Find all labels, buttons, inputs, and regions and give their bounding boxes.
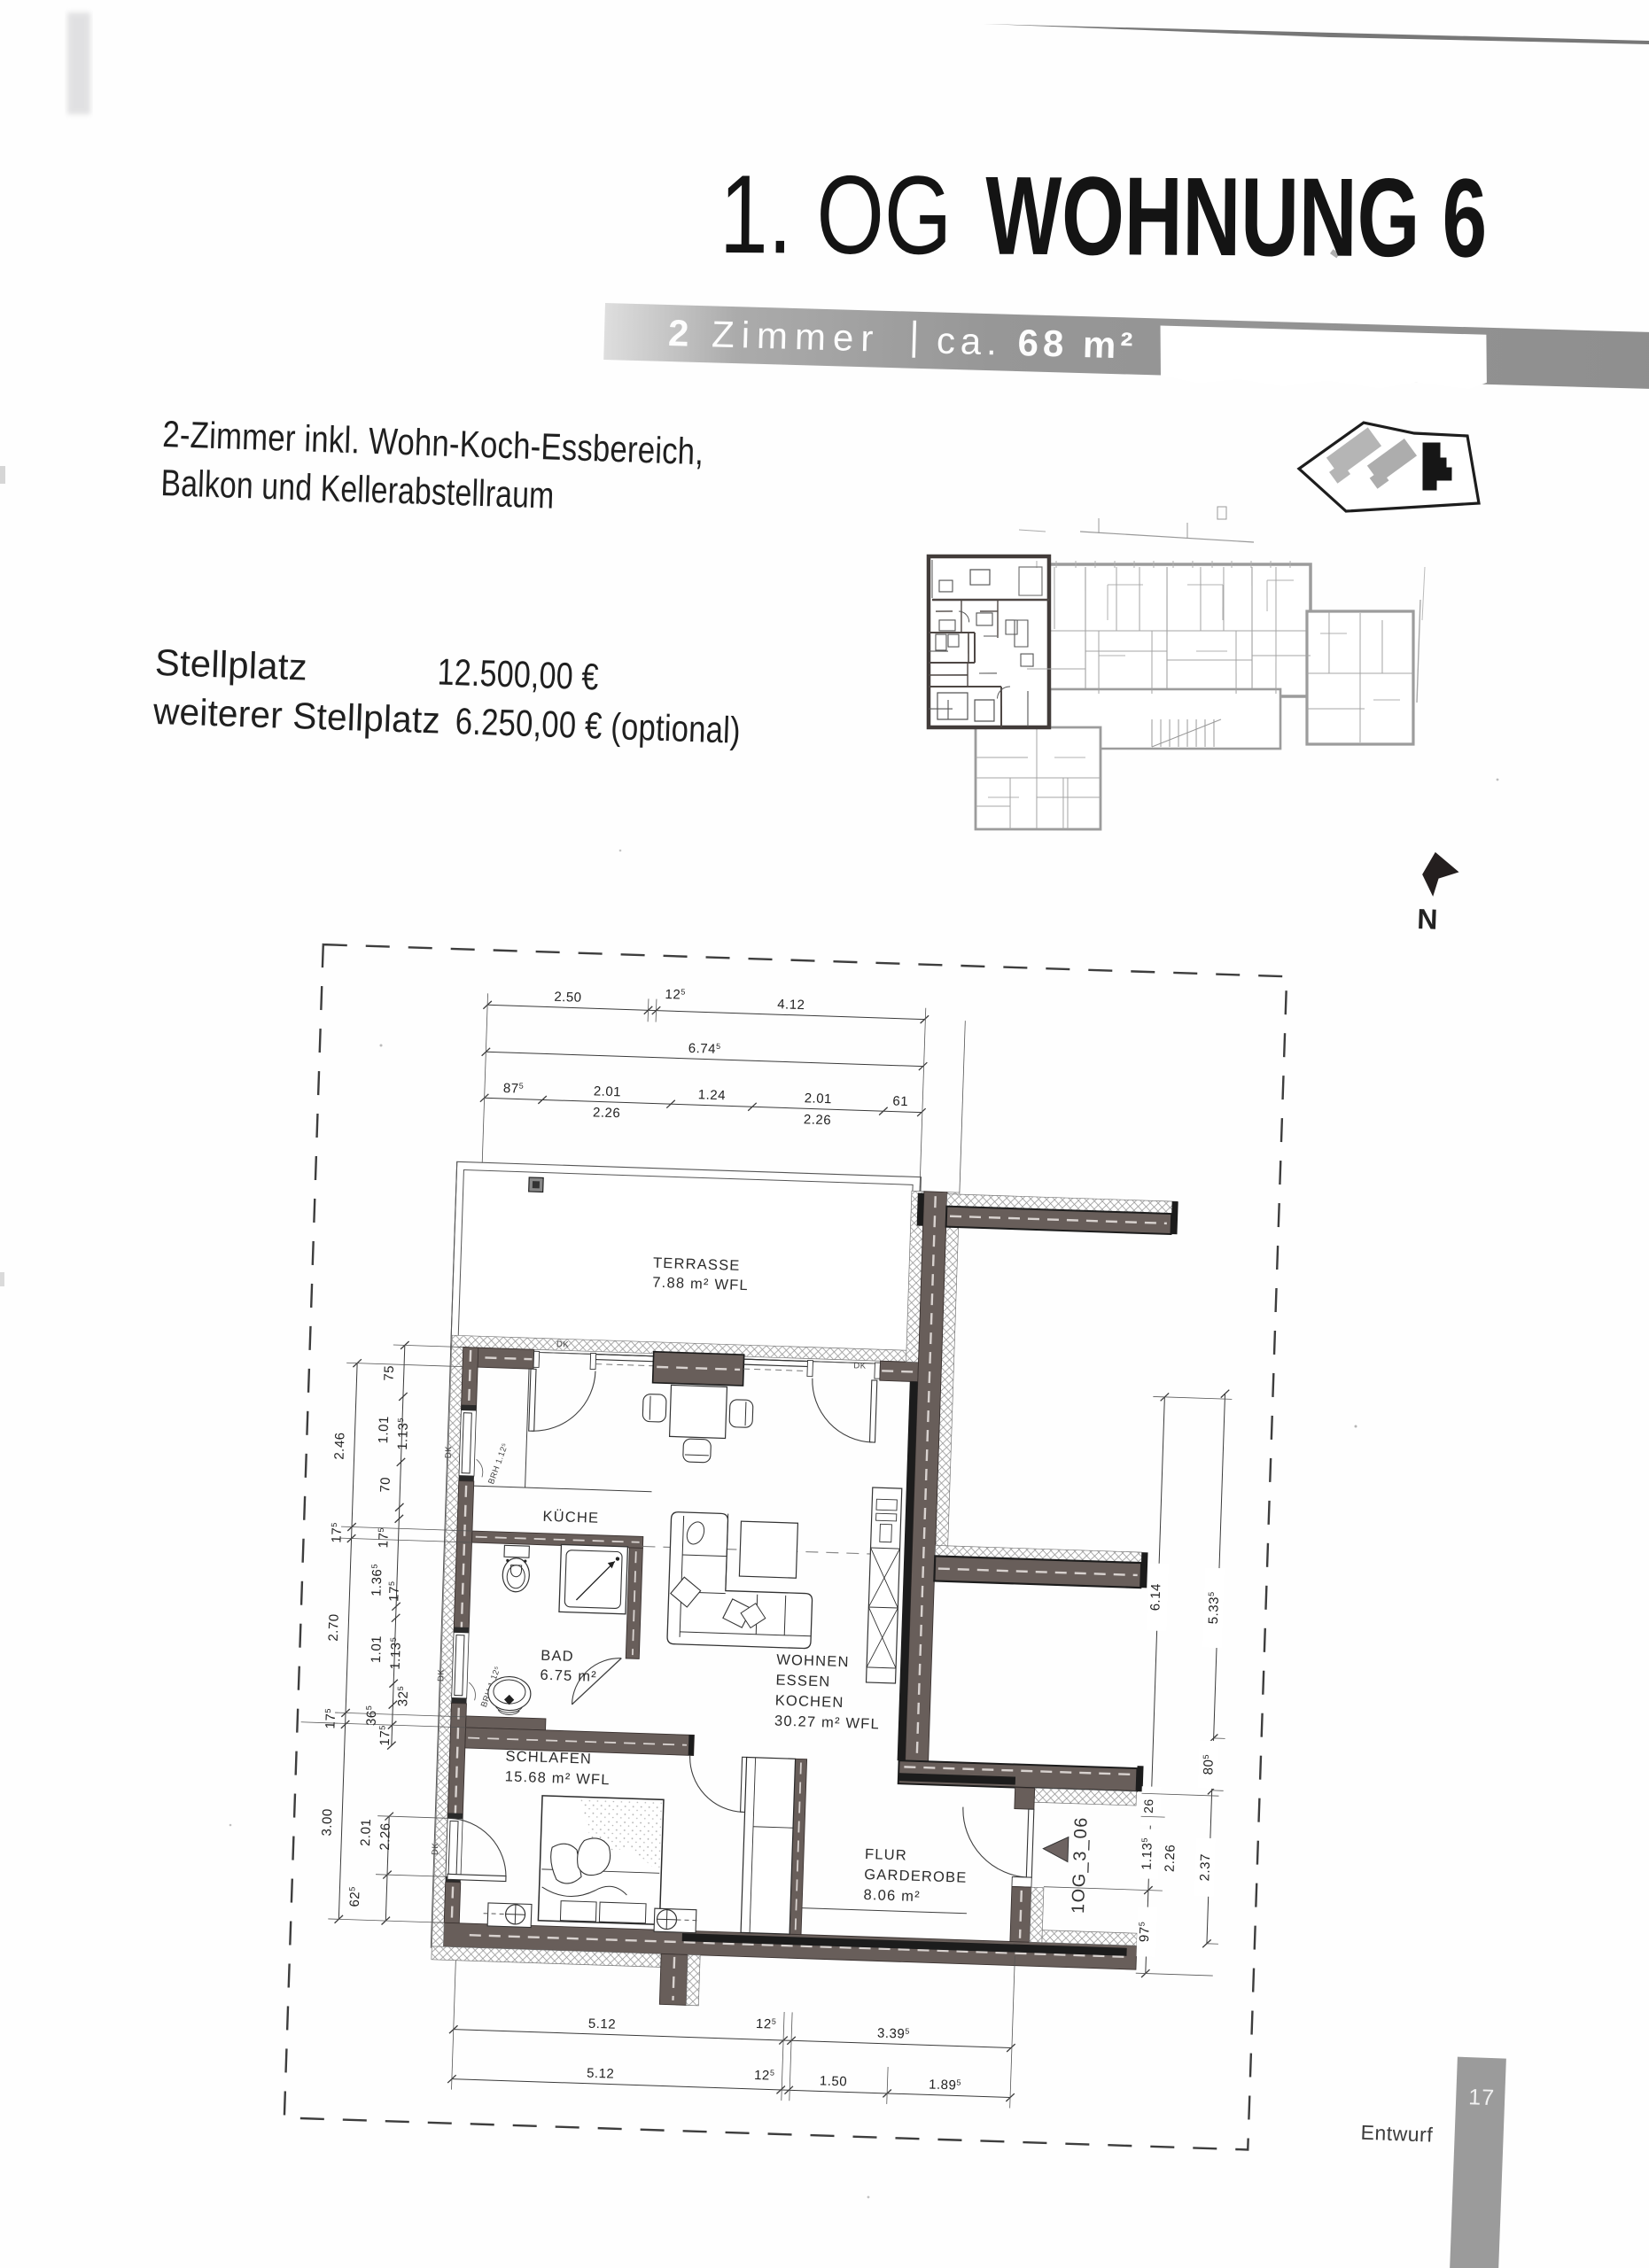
svg-text:5.12: 5.12 bbox=[587, 2066, 615, 2082]
svg-text:175: 175 bbox=[386, 1581, 402, 1602]
svg-text:FLUR: FLUR bbox=[865, 1846, 907, 1864]
svg-text:ca. 68 m²: ca. 68 m² bbox=[936, 319, 1138, 366]
svg-text:GARDEROBE: GARDEROBE bbox=[864, 1867, 968, 1886]
svg-text:26: 26 bbox=[1141, 1798, 1156, 1814]
svg-text:125: 125 bbox=[665, 987, 686, 1003]
svg-text:3.395: 3.395 bbox=[877, 2026, 910, 2042]
svg-text:1.895: 1.895 bbox=[929, 2077, 961, 2093]
svg-text:1.135: 1.135 bbox=[388, 1637, 404, 1670]
svg-text:DK: DK bbox=[556, 1340, 570, 1349]
svg-text:2.50: 2.50 bbox=[554, 990, 582, 1006]
svg-text:17: 17 bbox=[1468, 2085, 1496, 2110]
svg-text:1.135: 1.135 bbox=[395, 1417, 411, 1450]
svg-text:2.26: 2.26 bbox=[593, 1105, 621, 1121]
svg-text:2.37: 2.37 bbox=[1197, 1853, 1213, 1882]
svg-text:125: 125 bbox=[756, 2016, 777, 2032]
svg-text:Entwurf: Entwurf bbox=[1360, 2121, 1433, 2147]
svg-text:2 Zimmer: 2 Zimmer bbox=[667, 312, 881, 360]
svg-text:1.01: 1.01 bbox=[376, 1416, 392, 1444]
svg-text:61: 61 bbox=[892, 1094, 908, 1110]
svg-text:1. OGWOHNUNG 6: 1. OGWOHNUNG 6 bbox=[719, 151, 1488, 281]
svg-text:6.745: 6.745 bbox=[688, 1041, 720, 1057]
svg-text:3.00: 3.00 bbox=[319, 1808, 335, 1837]
svg-text:WOHNEN: WOHNEN bbox=[776, 1652, 850, 1671]
svg-text:8.06 m²: 8.06 m² bbox=[863, 1887, 921, 1905]
svg-text:12.500,00 €: 12.500,00 € bbox=[437, 650, 599, 697]
svg-text:175: 175 bbox=[377, 1725, 393, 1746]
svg-text:KOCHEN: KOCHEN bbox=[774, 1693, 844, 1712]
svg-text:KÜCHE: KÜCHE bbox=[542, 1509, 599, 1526]
svg-text:DK: DK bbox=[431, 1842, 440, 1855]
svg-text:15.68 m² WFL: 15.68 m² WFL bbox=[504, 1768, 610, 1788]
svg-text:175: 175 bbox=[323, 1708, 338, 1729]
svg-text:DK: DK bbox=[444, 1446, 454, 1459]
svg-text:325: 325 bbox=[395, 1686, 411, 1707]
svg-text:Stellplatz: Stellplatz bbox=[154, 641, 307, 688]
svg-text:2.26: 2.26 bbox=[804, 1112, 832, 1128]
svg-text:2.01: 2.01 bbox=[804, 1091, 832, 1107]
svg-text:6.250,00 € (optional): 6.250,00 € (optional) bbox=[455, 700, 741, 751]
svg-text:DK: DK bbox=[853, 1361, 867, 1371]
svg-text:2.46: 2.46 bbox=[332, 1432, 348, 1460]
svg-text:1.365: 1.365 bbox=[369, 1564, 385, 1596]
svg-text:Balkon und Kellerabstellraum: Balkon und Kellerabstellraum bbox=[160, 462, 555, 517]
svg-text:1OG_3_06: 1OG_3_06 bbox=[1069, 1816, 1092, 1915]
svg-text:5.12: 5.12 bbox=[588, 2016, 617, 2032]
svg-text:TERRASSE: TERRASSE bbox=[653, 1255, 741, 1274]
svg-text:30.27 m² WFL: 30.27 m² WFL bbox=[774, 1713, 880, 1732]
svg-text:1.01: 1.01 bbox=[369, 1635, 385, 1664]
svg-text:125: 125 bbox=[754, 2068, 775, 2084]
svg-text:365: 365 bbox=[364, 1705, 380, 1727]
svg-text:1.50: 1.50 bbox=[820, 2073, 848, 2089]
svg-text:DK: DK bbox=[436, 1668, 446, 1682]
svg-text:70: 70 bbox=[377, 1477, 393, 1493]
svg-text:7.88 m² WFL: 7.88 m² WFL bbox=[652, 1275, 749, 1294]
svg-text:ESSEN: ESSEN bbox=[775, 1673, 831, 1690]
svg-text:SCHLAFEN: SCHLAFEN bbox=[505, 1748, 592, 1767]
svg-text:2.01: 2.01 bbox=[358, 1818, 374, 1846]
svg-text:6.14: 6.14 bbox=[1147, 1583, 1163, 1612]
svg-text:weiterer Stellplatz: weiterer Stellplatz bbox=[152, 690, 440, 742]
svg-text:75: 75 bbox=[381, 1365, 397, 1381]
svg-text:1.24: 1.24 bbox=[698, 1087, 727, 1103]
svg-text:175: 175 bbox=[329, 1522, 345, 1543]
svg-text:2.01: 2.01 bbox=[594, 1084, 622, 1099]
svg-text:2.70: 2.70 bbox=[326, 1613, 342, 1642]
svg-text:N: N bbox=[1417, 903, 1438, 936]
svg-text:BAD: BAD bbox=[541, 1648, 574, 1665]
svg-text:625: 625 bbox=[347, 1886, 363, 1907]
svg-text:2.26: 2.26 bbox=[377, 1822, 393, 1851]
svg-text:4.12: 4.12 bbox=[777, 997, 805, 1013]
svg-text:BRH 1.12⁵: BRH 1.12⁵ bbox=[486, 1441, 510, 1486]
svg-text:875: 875 bbox=[503, 1081, 525, 1097]
svg-text:6.75 m²: 6.75 m² bbox=[540, 1667, 597, 1685]
svg-text:2.26: 2.26 bbox=[1163, 1845, 1178, 1873]
svg-text:175: 175 bbox=[376, 1527, 392, 1549]
